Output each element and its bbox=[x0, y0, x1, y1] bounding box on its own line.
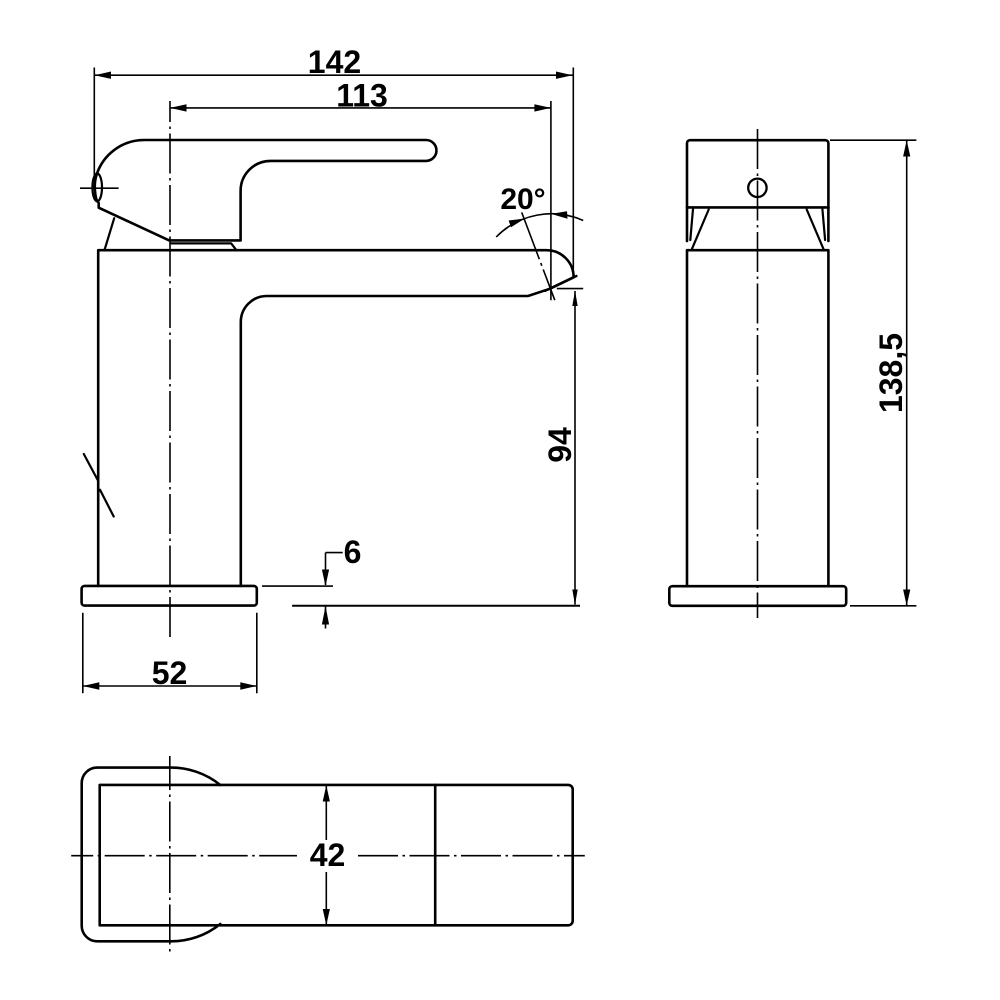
svg-text:138,5: 138,5 bbox=[873, 333, 909, 413]
svg-text:20°: 20° bbox=[500, 183, 545, 216]
svg-text:94: 94 bbox=[542, 427, 578, 463]
svg-text:6: 6 bbox=[344, 534, 362, 570]
svg-text:113: 113 bbox=[336, 78, 388, 114]
svg-text:142: 142 bbox=[308, 44, 361, 80]
svg-text:42: 42 bbox=[310, 837, 346, 873]
svg-text:52: 52 bbox=[152, 655, 188, 691]
